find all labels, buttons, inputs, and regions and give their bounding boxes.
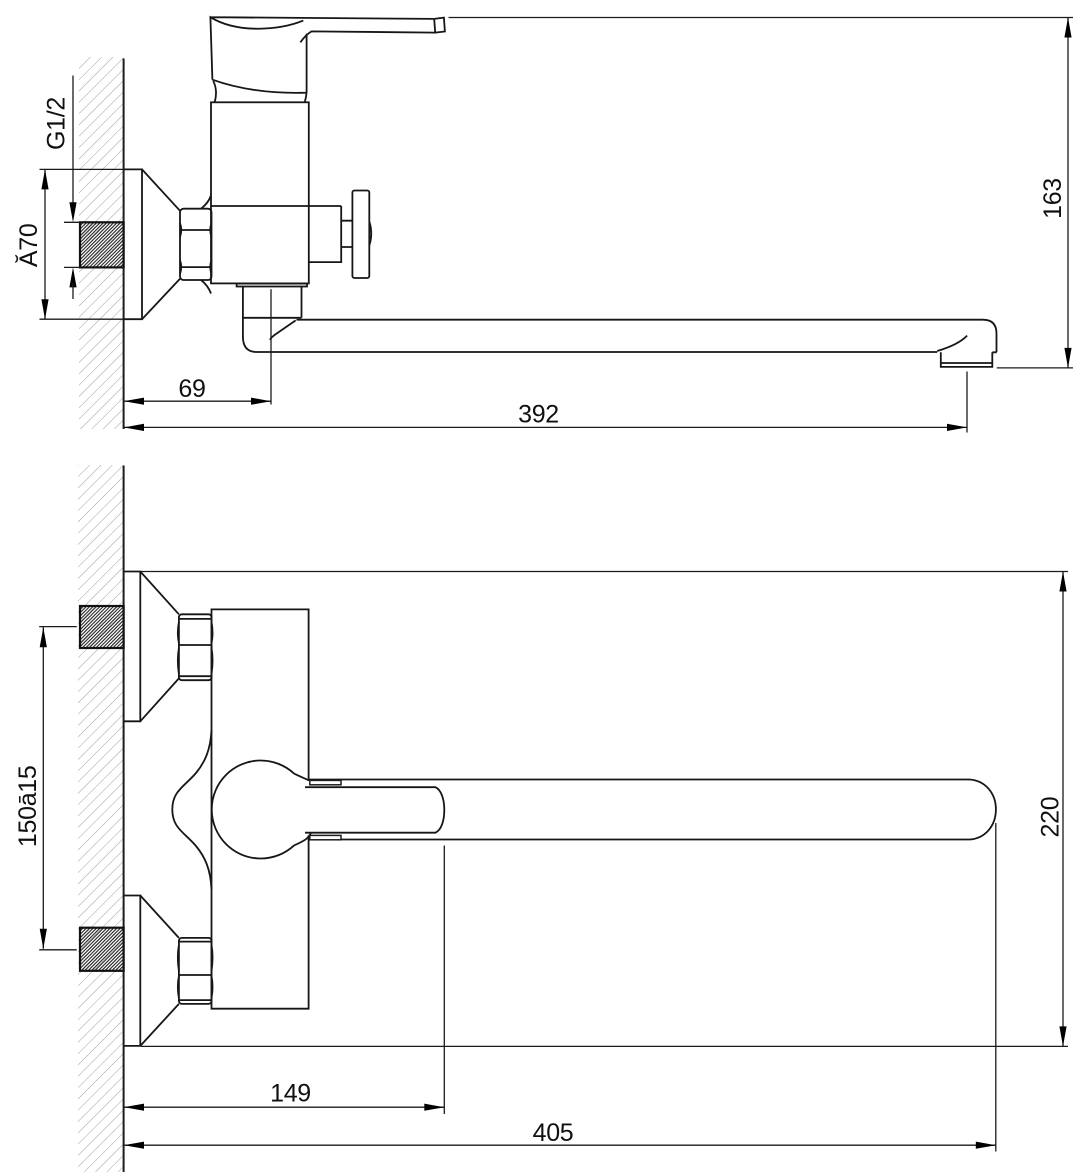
svg-text:69: 69 (178, 375, 205, 403)
svg-text:149: 149 (270, 1079, 311, 1107)
svg-text:392: 392 (518, 401, 559, 429)
svg-text:405: 405 (533, 1119, 574, 1147)
svg-text:Ă70: Ă70 (14, 224, 43, 268)
svg-text:G1/2: G1/2 (43, 97, 71, 150)
svg-text:150ā15: 150ā15 (14, 765, 42, 847)
svg-text:220: 220 (1037, 797, 1065, 838)
svg-text:163: 163 (1039, 178, 1067, 219)
